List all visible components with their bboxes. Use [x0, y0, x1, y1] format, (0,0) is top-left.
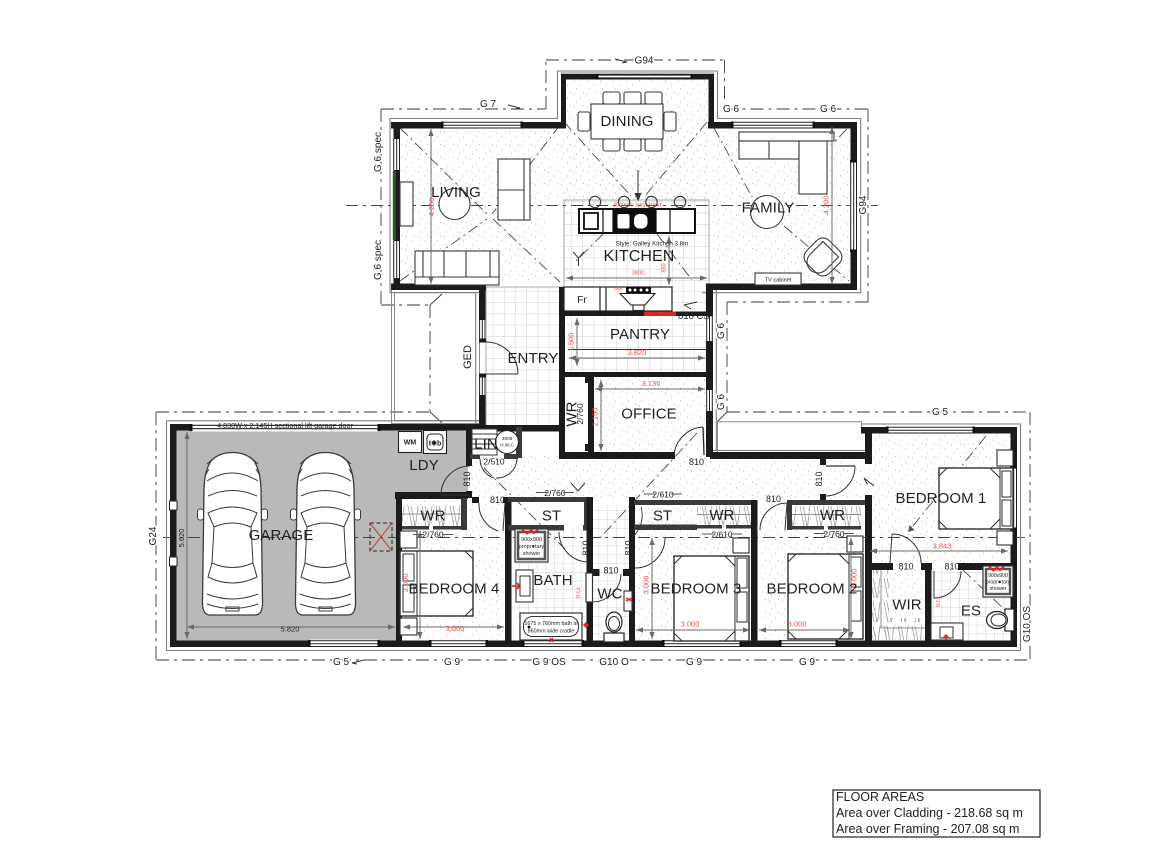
svg-text:ST: ST — [542, 508, 561, 525]
svg-text:860mm wide cradle: 860mm wide cradle — [528, 629, 575, 635]
svg-text:LDY: LDY — [409, 457, 438, 474]
svg-text:G 6 spec: G 6 spec — [373, 240, 384, 280]
svg-text:propr●tary: propr●tary — [986, 580, 1011, 586]
svg-text:2/510: 2/510 — [483, 457, 505, 467]
svg-text:300lt: 300lt — [502, 436, 513, 442]
svg-text:G10 OS: G10 OS — [1022, 606, 1033, 642]
svg-text:2/610: 2/610 — [652, 490, 674, 500]
svg-text:BEDROOM 3: BEDROOM 3 — [651, 581, 742, 598]
svg-text:G 9: G 9 — [799, 657, 816, 668]
svg-text:G 9: G 9 — [444, 657, 461, 668]
svg-text:2.150: 2.150 — [591, 408, 600, 427]
svg-text:2/760: 2/760 — [823, 529, 845, 539]
svg-text:810: 810 — [624, 540, 634, 555]
svg-text:G 9 OS: G 9 OS — [532, 657, 566, 668]
svg-text:ENTRY: ENTRY — [507, 350, 558, 367]
svg-text:G 5: G 5 — [333, 657, 350, 668]
svg-text:810: 810 — [766, 494, 781, 504]
svg-text:H.W.C: H.W.C — [500, 443, 514, 449]
svg-text:G 7: G 7 — [480, 99, 497, 110]
svg-text:810: 810 — [490, 495, 505, 505]
svg-text:810: 810 — [603, 566, 618, 576]
svg-text:propr●tary: propr●tary — [519, 544, 545, 550]
svg-text:shower: shower — [523, 551, 541, 557]
svg-text:810: 810 — [581, 540, 591, 555]
svg-text:2/760: 2/760 — [422, 530, 444, 540]
svg-text:3800: 3800 — [632, 271, 645, 277]
svg-text:G 6 spec: G 6 spec — [373, 132, 384, 172]
svg-text:BEDROOM 4: BEDROOM 4 — [409, 581, 500, 598]
svg-text:3.000: 3.000 — [446, 624, 465, 633]
svg-text:3.000: 3.000 — [788, 620, 807, 629]
svg-text:G 6: G 6 — [716, 394, 727, 411]
svg-text:shower: shower — [990, 586, 1007, 592]
svg-text:TV cabinet: TV cabinet — [765, 278, 792, 284]
svg-text:G 5: G 5 — [932, 407, 949, 418]
svg-text:GARAGE: GARAGE — [249, 527, 314, 544]
svg-text:3.820: 3.820 — [628, 348, 647, 357]
svg-text:810: 810 — [944, 562, 959, 572]
svg-text:LIVING: LIVING — [431, 184, 481, 201]
svg-text:h.t.r.: h.t.r. — [936, 595, 942, 607]
svg-text:t✱b: t✱b — [429, 440, 442, 448]
svg-text:900x900: 900x900 — [988, 573, 1008, 579]
svg-text:5.620: 5.620 — [177, 529, 186, 548]
svg-text:ES: ES — [961, 603, 981, 620]
svg-text:BEDROOM 2: BEDROOM 2 — [767, 581, 858, 598]
svg-text:3.000: 3.000 — [681, 620, 700, 629]
svg-text:KITCHEN: KITCHEN — [604, 248, 675, 265]
svg-text:Fr: Fr — [577, 295, 587, 306]
svg-text:PANTRY: PANTRY — [610, 326, 670, 343]
svg-text:810: 810 — [898, 562, 913, 572]
svg-text:Area over Cladding - 218.68 sq: Area over Cladding - 218.68 sq m — [836, 806, 1023, 820]
svg-text:G 6: G 6 — [723, 104, 740, 115]
svg-text:h.t.r.: h.t.r. — [576, 586, 582, 598]
svg-text:G 6: G 6 — [820, 104, 837, 115]
svg-text:2/760: 2/760 — [544, 488, 566, 498]
svg-text:3.000: 3.000 — [642, 576, 651, 595]
svg-text:3.843: 3.843 — [933, 542, 952, 551]
svg-text:G24: G24 — [148, 526, 159, 545]
svg-text:810: 810 — [689, 457, 704, 467]
svg-text:G94: G94 — [858, 195, 869, 214]
svg-text:BATH: BATH — [533, 572, 572, 589]
svg-text:WR: WR — [420, 508, 445, 525]
svg-text:810: 810 — [462, 471, 472, 486]
svg-text:ST: ST — [653, 508, 672, 525]
svg-text:Style: Galley Kitchen 3.8m: Style: Galley Kitchen 3.8m — [616, 241, 689, 248]
svg-text:4.830W x 2.145H sectional lift: 4.830W x 2.145H sectional lift garage do… — [217, 421, 353, 430]
svg-text:5.820: 5.820 — [281, 625, 300, 634]
svg-text:FLOOR AREAS: FLOOR AREAS — [836, 790, 924, 804]
svg-text:LIN: LIN — [474, 436, 498, 453]
svg-text:WR: WR — [709, 507, 734, 524]
svg-text:DINING: DINING — [600, 113, 653, 130]
svg-text:BEDROOM 1: BEDROOM 1 — [896, 490, 987, 507]
svg-text:WR: WR — [820, 507, 845, 524]
svg-text:810 CS: 810 CS — [678, 311, 710, 322]
svg-text:3.130: 3.130 — [642, 379, 661, 388]
svg-text:900x900: 900x900 — [521, 537, 542, 543]
svg-text:WM: WM — [404, 440, 417, 447]
svg-text:2/610: 2/610 — [711, 530, 733, 540]
svg-text:WIR: WIR — [892, 597, 922, 614]
svg-text:G 6: G 6 — [716, 323, 727, 340]
svg-text:WC: WC — [597, 586, 622, 603]
svg-text:2/760: 2/760 — [575, 403, 585, 425]
svg-text:GED: GED — [462, 345, 474, 369]
svg-text:G10 O: G10 O — [599, 657, 629, 668]
svg-text:G94: G94 — [635, 56, 654, 67]
svg-text:1.500: 1.500 — [567, 333, 576, 352]
svg-text:G 9: G 9 — [686, 657, 703, 668]
svg-text:Area over Framing - 207.08 sq: Area over Framing - 207.08 sq m — [836, 822, 1019, 836]
svg-text:hob: hob — [614, 287, 622, 292]
svg-text:1675 x 760mm bath in: 1675 x 760mm bath in — [524, 621, 577, 627]
svg-text:4.200: 4.200 — [822, 196, 831, 215]
svg-text:3000mm long island: 3000mm long island — [613, 203, 662, 209]
svg-text:OFFICE: OFFICE — [621, 406, 677, 423]
svg-text:FAMILY: FAMILY — [742, 200, 795, 217]
svg-text:810: 810 — [814, 471, 824, 486]
